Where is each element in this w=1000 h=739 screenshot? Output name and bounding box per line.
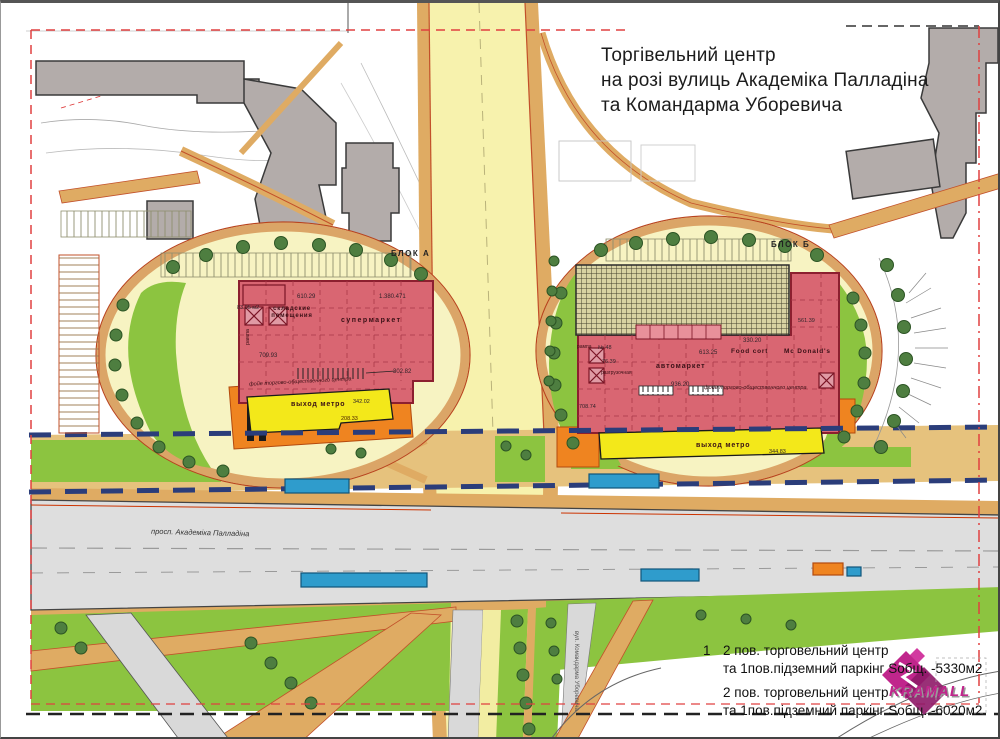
plan-title: Торгівельний центр на розі вулиць Академ… <box>601 43 929 118</box>
left-building <box>229 281 433 449</box>
right-ramp-label: рампа <box>577 345 592 351</box>
left-storage-label: складские помещения <box>263 306 321 320</box>
legend-item1-number: 1 <box>703 642 711 660</box>
right-a7639: 76.39 <box>602 359 616 365</box>
right-a34483: 344.83 <box>769 449 786 455</box>
slope-hatch-fan <box>873 258 948 448</box>
block-a-label: БЛОК А <box>391 249 430 258</box>
right-a56139: 561.39 <box>798 318 815 324</box>
existing-building-right-small <box>846 139 940 199</box>
bottom-strip-gray <box>448 610 483 739</box>
existing-building-tower <box>342 143 399 241</box>
plan-title-line3: та Командарма Уборевича <box>601 93 929 118</box>
plan-title-line2: на розі вулиць Академіка Палладіна <box>601 68 929 93</box>
left-area-top: 610.29 <box>297 294 315 301</box>
plan-title-line1: Торгівельний центр <box>601 43 929 68</box>
left-ramp-label: рампа <box>245 329 251 345</box>
left-metro-exit-label: выход метро <box>291 401 345 409</box>
right-foodcourt-label: Food cort <box>731 348 768 355</box>
left-supermarket-label: супермаркет <box>341 317 402 325</box>
left-area-top2: 1.380.471 <box>379 294 406 301</box>
left-area-right: 302.82 <box>393 369 411 376</box>
right-n48: № 48 <box>598 345 612 351</box>
right-a33020: 330.20 <box>743 338 761 345</box>
left-parcel-parking <box>161 253 411 277</box>
right-a61325: 613.25 <box>699 350 717 357</box>
left-small-area: 83.05 м2 <box>237 305 259 311</box>
right-automarket-label: автомаркет <box>656 363 706 371</box>
right-foyer-label: фойе торгово-общественного центра <box>704 385 807 391</box>
left-area-mid: 709.93 <box>259 353 277 360</box>
left-metro-area: 342.02 <box>353 399 370 405</box>
legend-item1-line1: 2 пов. торговельний центр <box>723 642 888 660</box>
kramall-logo-text: KRAMALL <box>889 683 970 700</box>
legend-item1-line2: та 1пов.підземний паркінг Sобщ. -5330м2 <box>723 660 982 678</box>
existing-building-topleft <box>36 61 259 103</box>
site-plan-canvas: Торгівельний центр на розі вулиць Академ… <box>0 0 1000 739</box>
right-metro-exit-label: выход метро <box>696 442 750 450</box>
right-a93620: 936.20 <box>671 382 689 389</box>
legend-item2-line1: 2 пов. торговельний центр <box>723 684 888 702</box>
legend-item2-line2: та 1пов.підземний паркінг Sобщ. -6020м2 <box>723 702 982 720</box>
right-mcdonalds-label: Mc Donald's <box>784 348 831 355</box>
right-unload-label: разгрузочная <box>601 371 632 377</box>
right-a70874: 708.74 <box>579 404 596 410</box>
street-label-uborevycha: вул. Командарма Уборевича <box>572 631 579 711</box>
block-b-label: БЛОК Б <box>771 240 810 249</box>
right-building <box>557 265 855 467</box>
left-orange-area: 208.33 <box>341 416 358 422</box>
